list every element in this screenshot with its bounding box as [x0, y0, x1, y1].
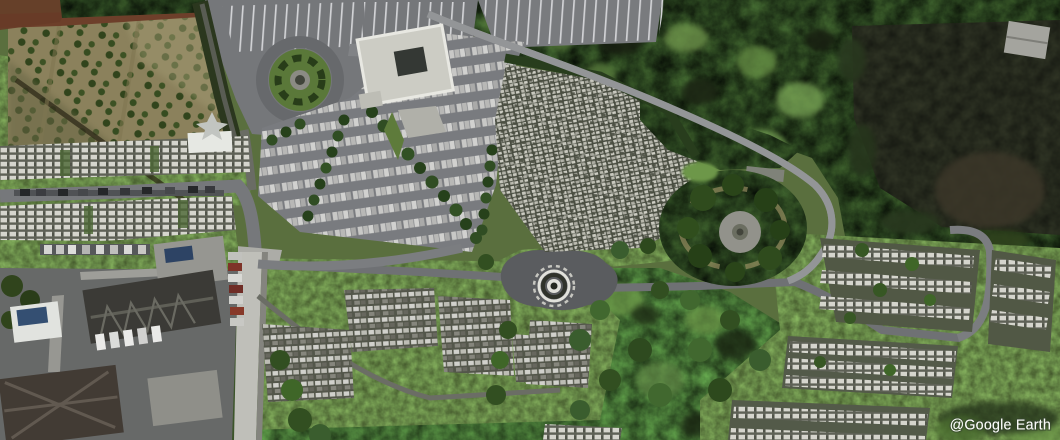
svg-text:@Google Earth: @Google Earth — [950, 418, 1051, 434]
